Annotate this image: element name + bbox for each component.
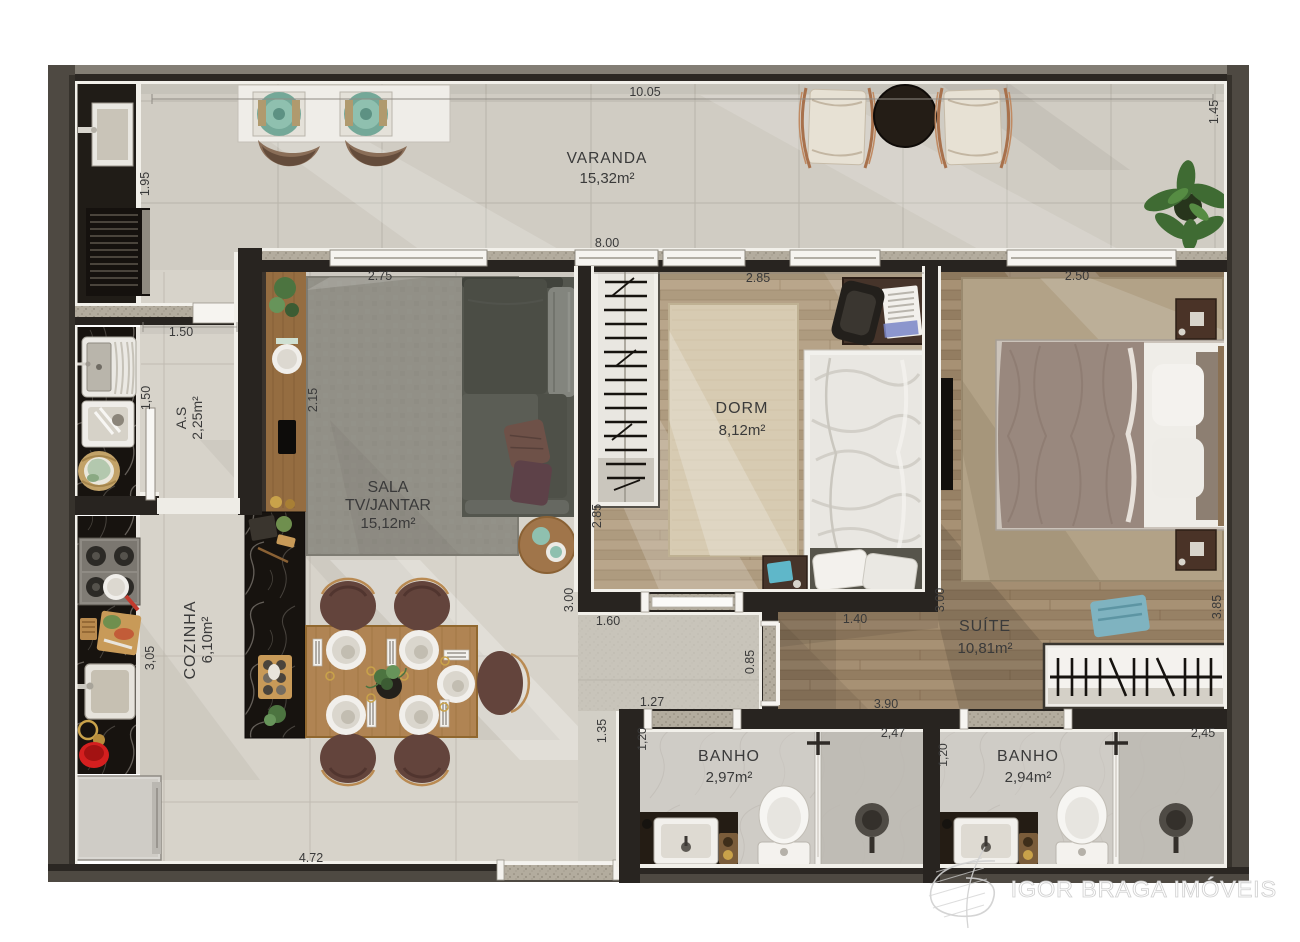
svg-text:1.50: 1.50 bbox=[169, 325, 193, 339]
svg-text:8.00: 8.00 bbox=[595, 236, 619, 250]
svg-text:1.45: 1.45 bbox=[1207, 100, 1221, 124]
svg-text:SALA: SALA bbox=[368, 479, 409, 496]
svg-text:1.35: 1.35 bbox=[595, 719, 609, 743]
svg-text:3,05: 3,05 bbox=[143, 646, 157, 670]
svg-text:2.85: 2.85 bbox=[590, 504, 604, 528]
svg-text:COZINHA: COZINHA bbox=[182, 601, 199, 680]
svg-text:BANHO: BANHO bbox=[698, 748, 760, 765]
svg-text:2.15: 2.15 bbox=[306, 388, 320, 412]
svg-text:VARANDA: VARANDA bbox=[567, 150, 648, 167]
svg-text:TV/JANTAR: TV/JANTAR bbox=[345, 497, 431, 514]
svg-text:8,12m²: 8,12m² bbox=[719, 422, 766, 439]
svg-text:3.90: 3.90 bbox=[874, 697, 898, 711]
svg-text:1,20: 1,20 bbox=[936, 743, 950, 767]
svg-text:1,20: 1,20 bbox=[635, 727, 649, 751]
svg-text:2,94m²: 2,94m² bbox=[1005, 769, 1052, 786]
svg-text:2.50: 2.50 bbox=[1065, 269, 1089, 283]
svg-text:DORM: DORM bbox=[716, 400, 769, 417]
svg-text:SUÍTE: SUÍTE bbox=[959, 616, 1011, 635]
svg-text:IGOR BRAGA IMÓVEIS: IGOR BRAGA IMÓVEIS bbox=[1011, 876, 1277, 902]
svg-text:3.85: 3.85 bbox=[1210, 595, 1224, 619]
svg-text:1.60: 1.60 bbox=[596, 614, 620, 628]
svg-text:10,81m²: 10,81m² bbox=[957, 640, 1012, 657]
svg-text:0.85: 0.85 bbox=[743, 650, 757, 674]
svg-text:4.72: 4.72 bbox=[299, 851, 323, 865]
svg-text:15,12m²: 15,12m² bbox=[360, 515, 415, 532]
svg-text:10.05: 10.05 bbox=[629, 85, 660, 99]
svg-text:2,25m²: 2,25m² bbox=[189, 396, 205, 440]
svg-text:2,97m²: 2,97m² bbox=[706, 769, 753, 786]
svg-text:2.85: 2.85 bbox=[746, 271, 770, 285]
svg-text:1.95: 1.95 bbox=[138, 172, 152, 196]
svg-text:2.75: 2.75 bbox=[368, 269, 392, 283]
svg-text:1,50: 1,50 bbox=[139, 386, 153, 410]
svg-text:1.40: 1.40 bbox=[843, 612, 867, 626]
svg-text:15,32m²: 15,32m² bbox=[579, 170, 634, 187]
svg-text:6,10m²: 6,10m² bbox=[199, 617, 216, 664]
svg-text:3.00: 3.00 bbox=[562, 588, 576, 612]
svg-text:3.00: 3.00 bbox=[933, 588, 947, 612]
svg-text:A.S: A.S bbox=[173, 407, 189, 430]
svg-text:2,47: 2,47 bbox=[881, 726, 905, 740]
svg-text:BANHO: BANHO bbox=[997, 748, 1059, 765]
svg-text:1.27: 1.27 bbox=[640, 695, 664, 709]
svg-text:2,45: 2,45 bbox=[1191, 726, 1215, 740]
